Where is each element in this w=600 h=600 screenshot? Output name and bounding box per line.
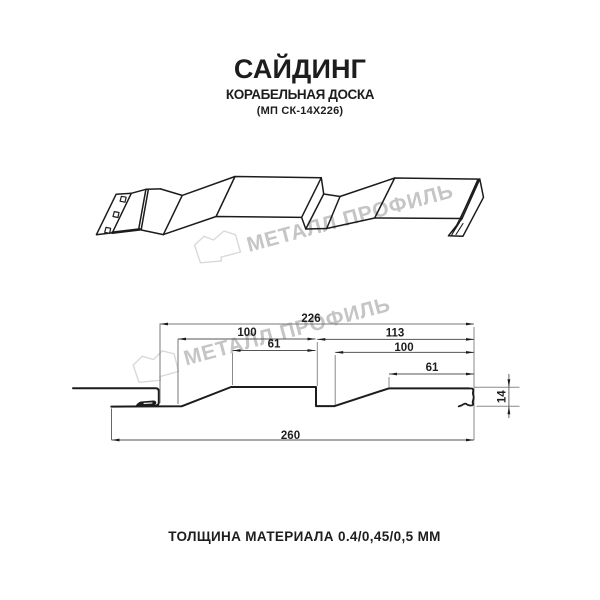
svg-text:(МП СК-14Х226): (МП СК-14Х226) [257,105,344,117]
svg-text:ТОЛЩИНА МАТЕРИАЛА 0.4/0,45/0,5: ТОЛЩИНА МАТЕРИАЛА 0.4/0,45/0,5 ММ [168,529,441,544]
svg-text:61: 61 [268,339,281,351]
svg-text:113: 113 [386,327,405,339]
svg-text:14: 14 [497,390,509,403]
svg-text:61: 61 [426,362,439,374]
svg-text:КОРАБЕЛЬНАЯ ДОСКА: КОРАБЕЛЬНАЯ ДОСКА [226,87,375,102]
svg-text:100: 100 [394,342,413,354]
svg-text:САЙДИНГ: САЙДИНГ [234,53,366,84]
svg-text:226: 226 [301,313,320,325]
svg-text:260: 260 [281,430,300,442]
svg-text:100: 100 [237,327,256,339]
